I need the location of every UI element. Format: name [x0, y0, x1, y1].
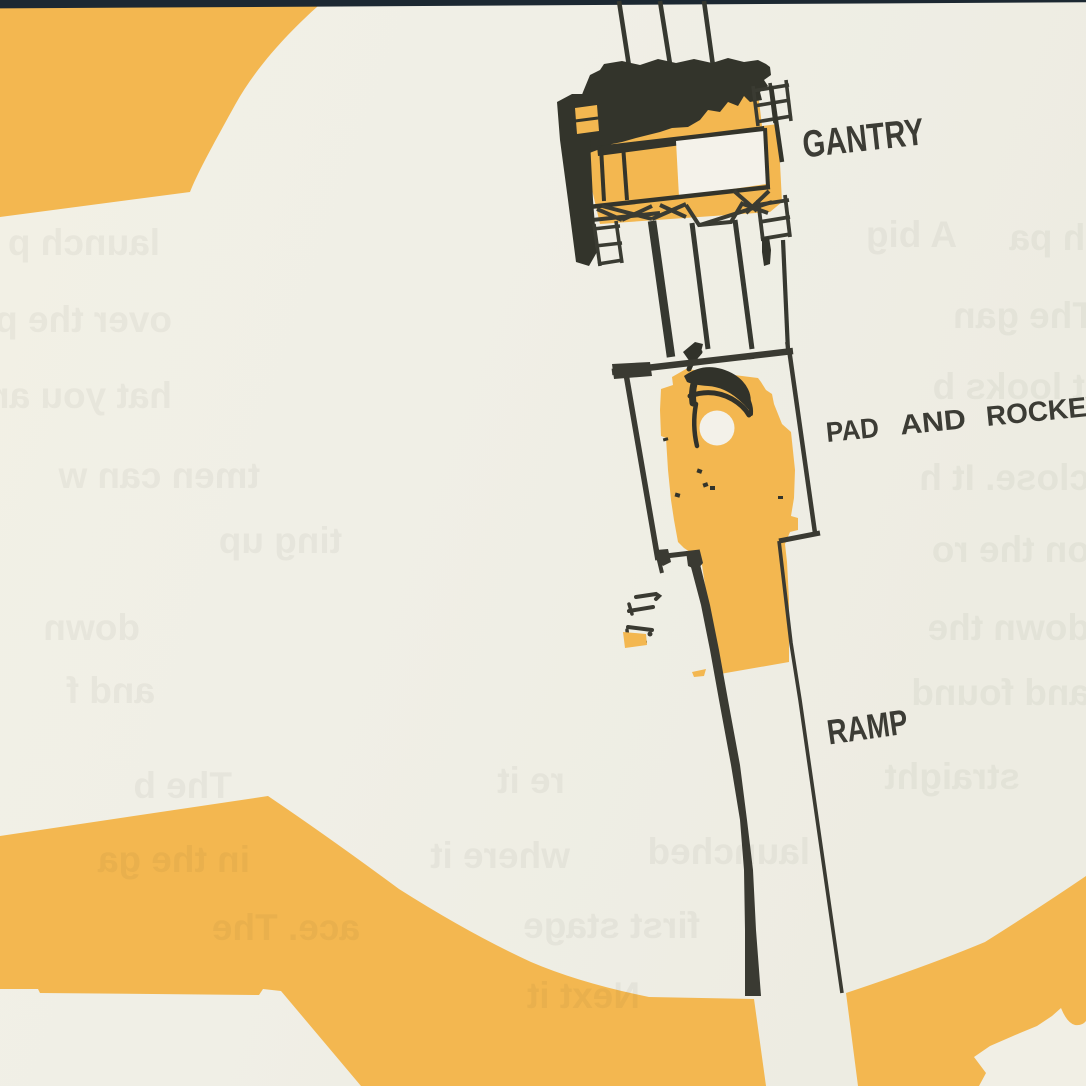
- svg-text:re it: re it: [497, 760, 565, 801]
- svg-text:down: down: [43, 607, 140, 648]
- svg-text:launched: launched: [648, 831, 810, 872]
- svg-text:where it: where it: [430, 835, 571, 876]
- svg-text:Next it: Next it: [527, 975, 640, 1016]
- svg-text:ting up: ting up: [219, 520, 342, 561]
- svg-text:and f: and f: [66, 670, 155, 711]
- svg-text:tmen can w: tmen can w: [58, 455, 260, 496]
- svg-text:PAD: PAD: [825, 412, 881, 448]
- svg-text:down the: down the: [928, 607, 1086, 648]
- svg-text:and found: and found: [911, 672, 1086, 713]
- svg-text:on the ro: on the ro: [932, 529, 1086, 570]
- svg-text:straight: straight: [884, 756, 1020, 797]
- svg-text:over the p: over the p: [0, 299, 172, 340]
- svg-text:The gan: The gan: [953, 295, 1086, 336]
- svg-text:AND: AND: [899, 403, 968, 440]
- svg-text:launch p: launch p: [8, 222, 160, 263]
- svg-text:ace. The: ace. The: [212, 907, 360, 948]
- svg-text:ch pa: ch pa: [1009, 217, 1086, 258]
- svg-text:A big: A big: [866, 214, 957, 255]
- svg-text:close. It h: close. It h: [919, 457, 1086, 498]
- svg-text:hat you are: hat you are: [0, 375, 172, 416]
- svg-text:first stage: first stage: [523, 905, 700, 946]
- svg-text:The b: The b: [133, 765, 232, 806]
- svg-text:in the ga: in the ga: [97, 839, 250, 880]
